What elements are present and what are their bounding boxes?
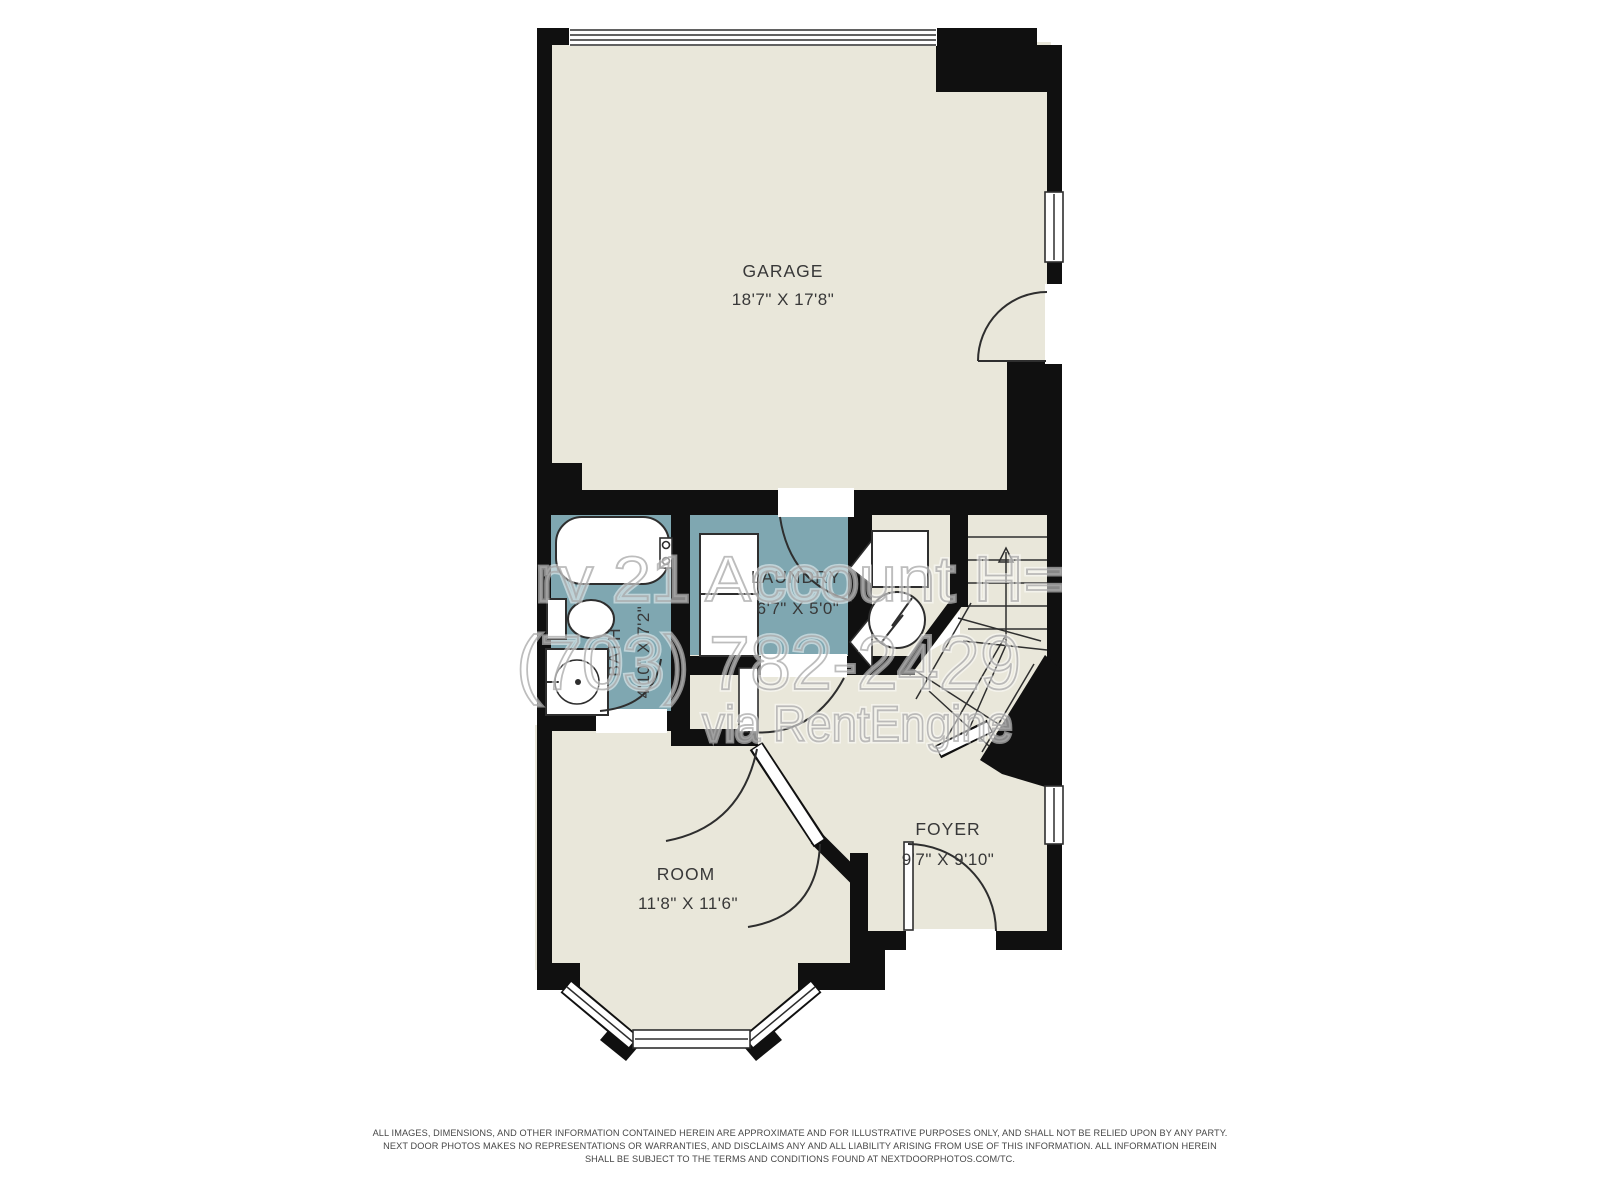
disclaimer-line2: NEXT DOOR PHOTOS MAKES NO REPRESENTATION… — [383, 1141, 1217, 1151]
garage-door — [569, 26, 937, 46]
disclaimer-line1: ALL IMAGES, DIMENSIONS, AND OTHER INFORM… — [373, 1128, 1228, 1138]
watermark-line1: rv 21 Account H= — [536, 543, 1064, 615]
foyer-window — [1045, 786, 1063, 844]
floor-plan-page: GARAGE 18'7" X 17'8" LAUNDRY 6'7" X 5'0"… — [0, 0, 1600, 1200]
foyer-label: FOYER — [915, 819, 980, 839]
floor-plan-drawing: GARAGE 18'7" X 17'8" LAUNDRY 6'7" X 5'0"… — [0, 0, 1600, 1200]
garage-label: GARAGE — [743, 261, 824, 281]
bay-window-center — [633, 1030, 750, 1048]
garage-dims: 18'7" X 17'8" — [732, 290, 835, 309]
disclaimer-line3: SHALL BE SUBJECT TO THE TERMS AND CONDIT… — [585, 1154, 1015, 1164]
room-dims: 11'8" X 11'6" — [638, 894, 738, 913]
foyer-dims: 9'7" X 9'10" — [902, 850, 995, 869]
garage-window — [1045, 192, 1063, 262]
disclaimer: ALL IMAGES, DIMENSIONS, AND OTHER INFORM… — [373, 1128, 1228, 1164]
watermark-line3: via RentEngine — [702, 696, 1012, 752]
watermark-line2: (703) 782-2429 — [516, 621, 1021, 706]
room-label: ROOM — [657, 864, 715, 884]
